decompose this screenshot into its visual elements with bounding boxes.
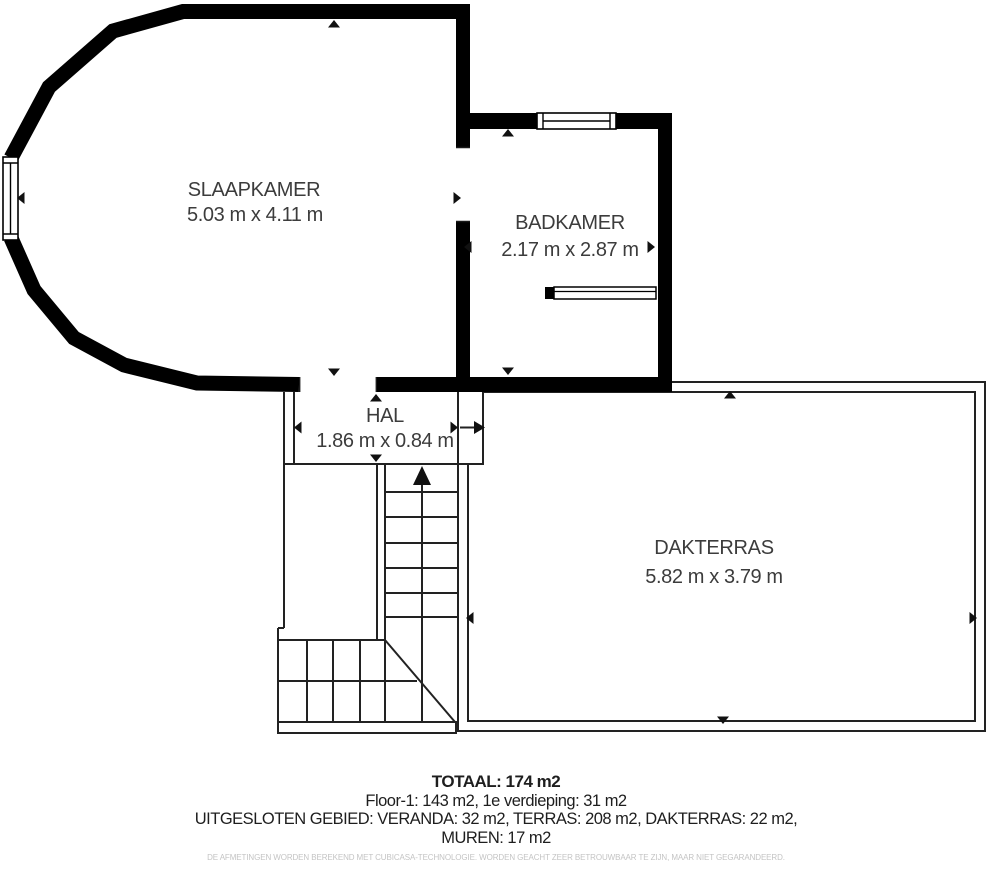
area-summary: TOTAAL: 174 m2 Floor-1: 143 m2, 1e verdi…	[0, 773, 992, 847]
wall-bottom-band	[377, 377, 672, 392]
dim-arrow-badkamer-right	[648, 241, 656, 253]
stair-shaft-walls	[377, 464, 385, 640]
thick-wall-segments	[377, 4, 672, 392]
room-label-slaapkamer: SLAAPKAMER	[188, 179, 321, 201]
dim-arrow-hal-bottom	[370, 455, 382, 463]
dim-arrow-hal-top	[370, 394, 382, 402]
dim-arrow-slaapkamer-top	[328, 20, 340, 28]
room-label-badkamer: BADKAMER	[515, 212, 625, 234]
room-dims-hal: 1.86 m x 0.84 m	[316, 430, 453, 452]
wall-slaapkamer-right-upper	[456, 4, 470, 147]
dim-arrow-slaapkamer-right	[454, 192, 462, 204]
room-dims-slaapkamer: 5.03 m x 4.11 m	[187, 204, 323, 226]
dim-arrow-hal-left	[294, 422, 302, 434]
stair-bottom-wall	[278, 722, 456, 733]
floor-plan-canvas: SLAAPKAMER 5.03 m x 4.11 m BADKAMER 2.17…	[0, 0, 992, 768]
wall-badkamer-right	[658, 113, 672, 392]
dim-arrow-badkamer-top	[502, 129, 514, 137]
stairs-up-arrow-icon	[413, 466, 431, 485]
summary-excluded: UITGESLOTEN GEBIED: VERANDA: 32 m2, TERR…	[0, 810, 992, 829]
door-openings	[300, 148, 470, 393]
disclaimer-text: DE AFMETINGEN WORDEN BEREKEND MET CUBICA…	[0, 853, 992, 862]
door-slaapkamer-badkamer	[456, 148, 470, 222]
summary-walls: MUREN: 17 m2	[0, 829, 992, 848]
window-icon-left	[3, 157, 18, 240]
bay-wall-lower	[11, 238, 299, 385]
wall-badkamer-top-left	[470, 113, 537, 129]
summary-floors: Floor-1: 143 m2, 1e verdieping: 31 m2	[0, 792, 992, 811]
summary-total: TOTAAL: 174 m2	[0, 773, 992, 792]
window-icon-badkamer	[537, 113, 616, 129]
floorplan-page: SLAAPKAMER 5.03 m x 4.11 m BADKAMER 2.17…	[0, 0, 992, 872]
room-dims-dakterras: 5.82 m x 3.79 m	[645, 566, 782, 588]
room-label-hal: HAL	[366, 405, 404, 427]
dim-arrow-badkamer-bottom	[502, 368, 514, 376]
dim-arrow-slaapkamer-bottom	[328, 369, 340, 377]
bay-wall-upper	[11, 12, 470, 159]
door-slaapkamer-hal	[300, 377, 377, 392]
radiator-icon	[545, 287, 656, 299]
room-dims-badkamer: 2.17 m x 2.87 m	[501, 239, 638, 261]
room-label-dakterras: DAKTERRAS	[654, 537, 774, 559]
